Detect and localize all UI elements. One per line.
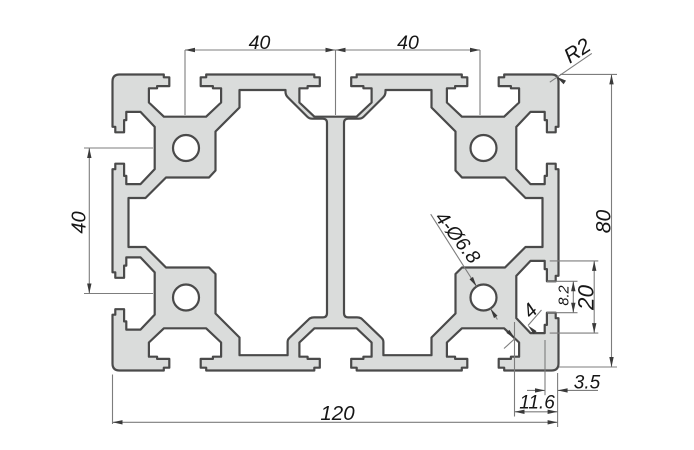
svg-text:40: 40 [397,32,419,54]
svg-text:20: 20 [574,285,599,312]
svg-text:120: 120 [320,402,355,425]
svg-text:40: 40 [69,211,91,233]
svg-text:8.2: 8.2 [556,285,572,305]
svg-text:80: 80 [593,210,616,234]
svg-text:40: 40 [249,32,271,54]
svg-text:11.6: 11.6 [519,393,555,414]
svg-text:3.5: 3.5 [574,373,601,394]
